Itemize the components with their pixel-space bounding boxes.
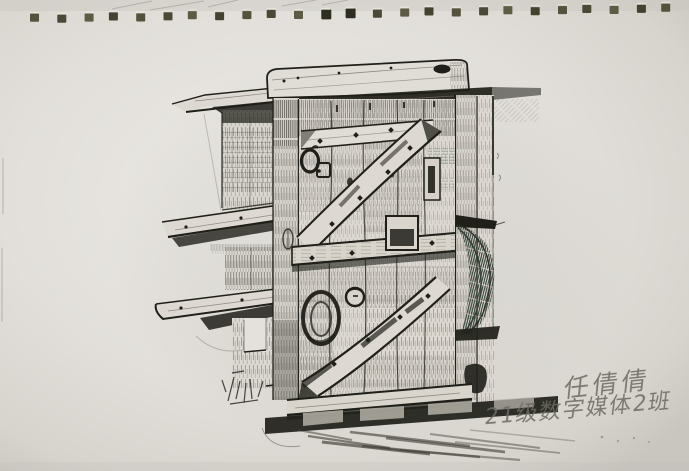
binding-hole [294, 11, 303, 20]
binding-hole [215, 12, 224, 21]
door-leaf [287, 99, 472, 420]
binding-hole-highlight [164, 10, 173, 12]
binding-hole [109, 12, 118, 21]
binding-hole-highlight [57, 13, 66, 15]
binding-hole-highlight [242, 9, 251, 11]
binding-hole-highlight [531, 5, 540, 7]
binding-hole [85, 13, 94, 22]
binding-hole-highlight [215, 10, 224, 12]
binding-hole-highlight [452, 6, 461, 8]
binding-hole-highlight [661, 2, 670, 4]
binding-hole-highlight [479, 5, 488, 7]
binding-hole-highlight [610, 4, 619, 6]
binding-hole-highlight [400, 7, 409, 9]
wall-planks-upper [222, 110, 274, 210]
photo-of-sketchbook-page: 任倩倩 21级数字媒体2班 [0, 0, 689, 471]
sketch-drawing [0, 0, 689, 471]
binding-hole-highlight [267, 8, 276, 10]
binding-hole-highlight [582, 3, 591, 5]
binding-hole-highlight [346, 7, 355, 9]
binding-hole-highlight [558, 4, 567, 6]
binding-hole [242, 11, 251, 19]
binding-hole-highlight [637, 3, 646, 5]
binding-hole-highlight [109, 11, 118, 13]
binding-hole-highlight [373, 8, 382, 10]
binding-hole [373, 9, 382, 18]
binding-hole-highlight [294, 9, 303, 11]
binding-hole [136, 13, 145, 22]
binding-hole [425, 7, 434, 16]
binding-hole [637, 4, 646, 13]
binding-hole [452, 8, 461, 17]
binding-hole [346, 8, 356, 18]
binding-hole [610, 5, 619, 14]
binding-hole-highlight [321, 8, 330, 10]
binding-hole-highlight [425, 6, 434, 8]
binding-hole [321, 9, 331, 19]
binding-hole [57, 14, 66, 22]
binding-hole [503, 6, 512, 15]
binding-hole [188, 11, 197, 19]
binding-hole-highlight [136, 12, 145, 14]
binding-hole [531, 7, 540, 16]
binding-hole [267, 10, 276, 19]
binding-hole-highlight [85, 12, 94, 14]
binding-hole-highlight [503, 4, 512, 6]
binding-hole-highlight [30, 12, 39, 14]
binding-hole [661, 3, 670, 12]
door-knob [346, 288, 364, 306]
lintel-knot-hole [434, 65, 451, 74]
binding-hole [30, 13, 39, 21]
latch-box [386, 216, 418, 250]
binding-hole [582, 4, 591, 13]
binding-hole [164, 12, 173, 21]
binding-hole-highlight [188, 9, 197, 11]
binding-hole [558, 6, 567, 15]
keyhole-slot-plate [424, 158, 440, 200]
binding-hole [400, 8, 409, 16]
binding-hole [479, 7, 488, 16]
